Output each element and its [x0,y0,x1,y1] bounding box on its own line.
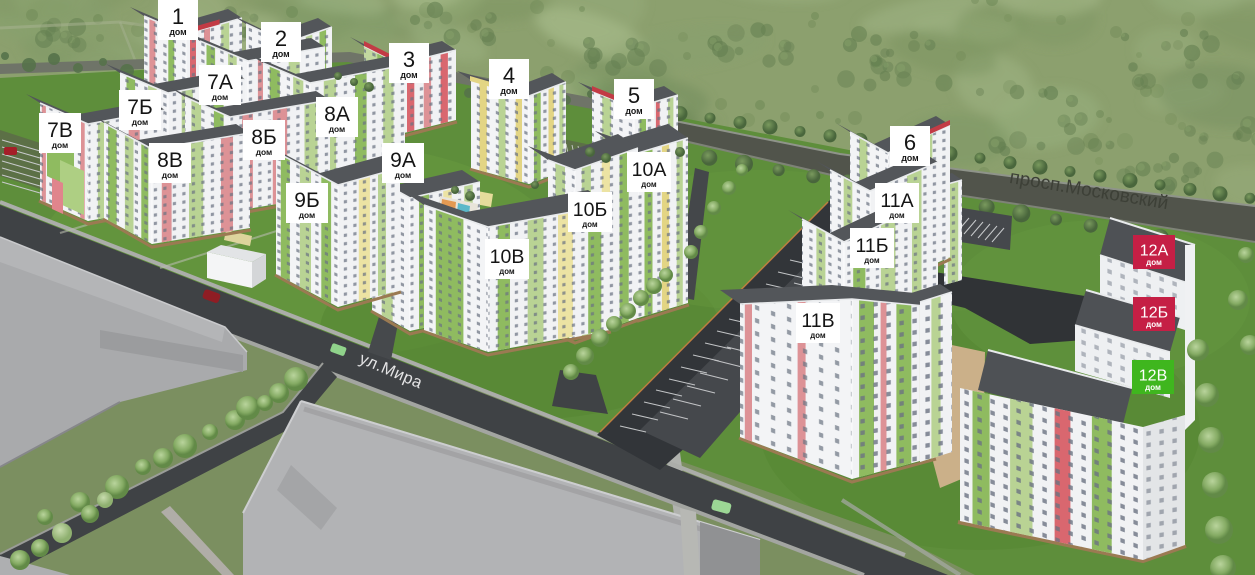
svg-text:дом: дом [299,210,316,220]
svg-text:7А: 7А [207,71,233,94]
svg-text:дом: дом [272,49,289,59]
svg-text:11В: 11В [801,310,834,332]
svg-text:8Б: 8Б [251,126,276,149]
svg-text:дом: дом [162,170,179,180]
svg-text:2: 2 [275,26,287,51]
svg-text:12В: 12В [1139,367,1167,384]
svg-text:11Б: 11Б [855,235,888,257]
svg-text:дом: дом [500,86,517,96]
svg-text:12А: 12А [1140,242,1169,259]
svg-text:6: 6 [904,130,916,155]
svg-text:дом: дом [641,180,657,189]
svg-text:дом: дом [329,124,346,134]
svg-text:9А: 9А [390,149,416,172]
svg-text:10А: 10А [632,159,667,181]
svg-text:дом: дом [256,147,273,157]
svg-text:7В: 7В [47,119,73,142]
svg-text:дом: дом [1145,383,1161,392]
svg-text:8А: 8А [324,103,350,126]
svg-text:дом: дом [52,140,69,150]
svg-text:дом: дом [169,27,186,37]
svg-text:8В: 8В [157,149,183,172]
svg-text:дом: дом [625,106,642,116]
svg-text:дом: дом [901,153,918,163]
svg-text:дом: дом [395,170,412,180]
svg-text:дом: дом [889,211,905,220]
svg-text:дом: дом [499,267,515,276]
svg-text:дом: дом [132,117,149,127]
svg-text:дом: дом [864,256,880,265]
svg-text:дом: дом [1146,320,1162,329]
svg-text:11А: 11А [880,190,913,212]
svg-text:дом: дом [810,331,826,340]
svg-text:10Б: 10Б [573,199,608,221]
svg-text:12Б: 12Б [1140,304,1168,321]
svg-text:дом: дом [212,92,229,102]
svg-text:9Б: 9Б [294,189,319,212]
svg-text:7Б: 7Б [127,96,152,119]
svg-text:дом: дом [400,70,417,80]
svg-text:4: 4 [503,63,515,88]
svg-text:5: 5 [628,83,640,108]
svg-text:10В: 10В [490,246,525,268]
svg-text:3: 3 [403,47,415,72]
svg-text:дом: дом [1146,258,1162,267]
svg-text:1: 1 [172,4,184,29]
svg-text:дом: дом [582,220,598,229]
